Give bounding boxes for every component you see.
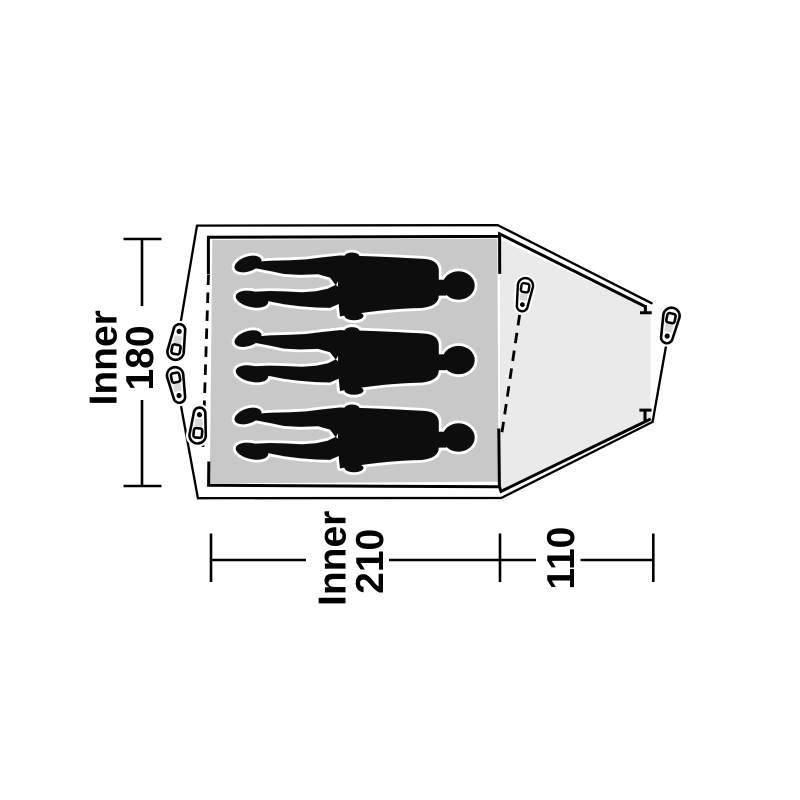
svg-text:180: 180 — [119, 325, 162, 390]
svg-text:110: 110 — [540, 527, 583, 590]
svg-text:210: 210 — [349, 529, 392, 594]
